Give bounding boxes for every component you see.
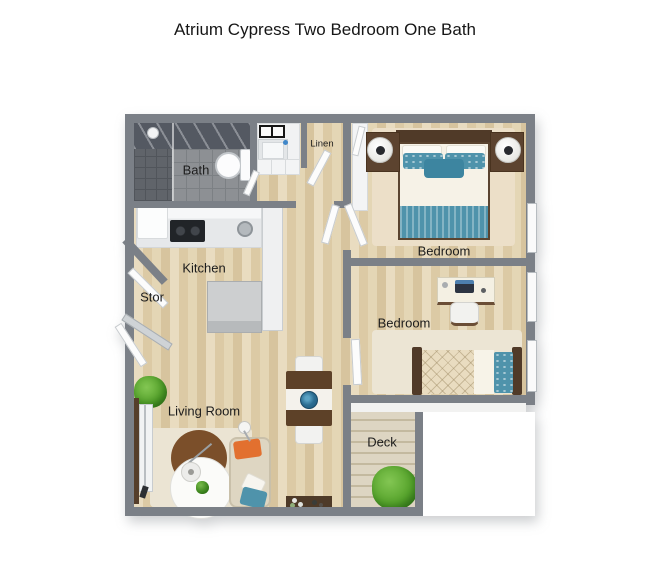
wall-bedroom-divider — [351, 258, 535, 266]
storage-label: Stor — [140, 290, 164, 305]
lamp-finial — [504, 146, 513, 155]
mouse-icon — [481, 288, 486, 293]
wall-bottom — [125, 507, 423, 516]
dining-chair-bottom — [295, 424, 323, 444]
deck-label: Deck — [367, 435, 397, 450]
kitchen-sink-icon — [237, 221, 253, 237]
wall-bath-south — [125, 201, 296, 208]
faucet-icon — [283, 140, 288, 145]
wall-hall-right-a — [343, 114, 351, 205]
desk-chair — [450, 302, 479, 326]
wall-vanity-linen — [301, 114, 307, 168]
linen-label: Linen — [310, 139, 333, 150]
vanity-basin — [262, 142, 284, 159]
deck-plant-icon — [372, 466, 418, 510]
lamp-finial — [376, 146, 385, 155]
living-room-label: Living Room — [168, 404, 240, 419]
bed-pillow-center — [424, 159, 464, 178]
single-bed-quilt — [422, 350, 474, 394]
showerhead-icon — [147, 127, 159, 139]
console-item — [312, 500, 317, 505]
stove-icon — [170, 220, 205, 242]
wall-top — [125, 114, 535, 123]
wall-bedroom2-south — [343, 395, 535, 403]
vanity-mirror — [259, 125, 285, 138]
vase-center — [188, 469, 194, 475]
exterior-cutout — [423, 412, 535, 516]
vanity-cabinets — [257, 159, 300, 175]
bed-headboard — [396, 130, 492, 142]
single-bed-pillow-teal — [494, 352, 513, 393]
bedroom2-label: Bedroom — [378, 316, 431, 331]
bath-label: Bath — [183, 163, 210, 178]
window — [527, 340, 537, 392]
shower-glass — [172, 123, 174, 201]
wall-exterior-face — [351, 403, 526, 412]
kitchen-island — [207, 281, 262, 333]
pantry-partition — [262, 205, 283, 331]
single-bed-post — [512, 347, 522, 395]
wall-hall-right-b — [343, 250, 351, 338]
mug-icon — [442, 282, 448, 288]
toilet-bowl-icon — [215, 152, 242, 179]
tv-icon — [139, 404, 153, 492]
kitchen-label: Kitchen — [182, 261, 225, 276]
bedroom1-label: Bedroom — [418, 244, 471, 259]
wall-deck-right — [415, 403, 423, 516]
table-plant-icon — [196, 481, 209, 494]
single-bed-post — [412, 347, 422, 395]
sofa-pillow-orange — [233, 438, 262, 460]
window — [527, 272, 537, 322]
window — [527, 203, 537, 253]
mirror-pane — [273, 127, 283, 136]
refrigerator-icon — [137, 206, 168, 239]
laptop-icon — [455, 280, 474, 293]
wall-hall-right-c — [343, 385, 351, 507]
floorplan-page: Atrium Cypress Two Bedroom One Bath — [0, 0, 650, 584]
bed-foot-blanket — [400, 206, 488, 238]
single-bed-sheet — [474, 350, 494, 394]
floorplan: Bath Linen Kitchen Stor Bedroom Bedroom … — [0, 0, 650, 584]
bowl-icon — [300, 391, 318, 409]
mirror-pane — [261, 127, 271, 136]
